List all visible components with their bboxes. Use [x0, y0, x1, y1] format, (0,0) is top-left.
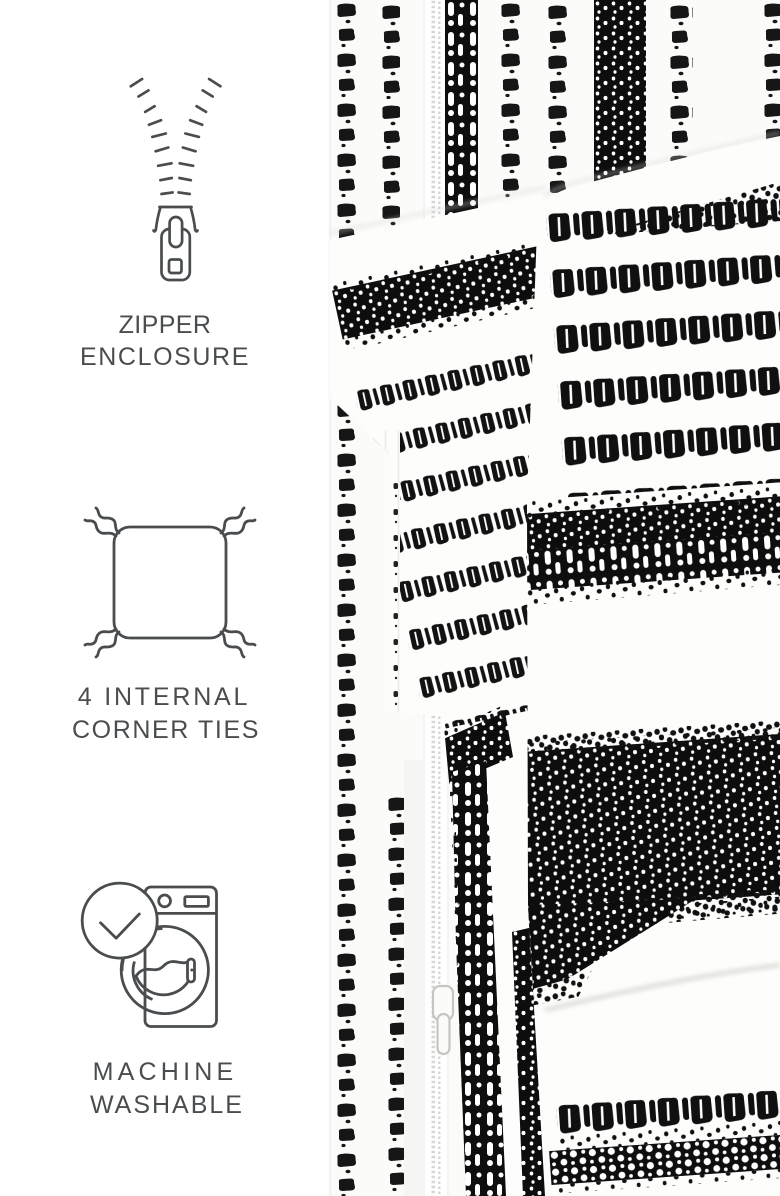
svg-text:ENCLOSURE: ENCLOSURE: [80, 343, 250, 371]
svg-text:MACHINE: MACHINE: [93, 1058, 238, 1086]
svg-text:WASHABLE: WASHABLE: [90, 1091, 244, 1119]
svg-text:4 INTERNAL: 4 INTERNAL: [78, 683, 250, 711]
svg-text:ZIPPER: ZIPPER: [119, 311, 212, 339]
svg-text:CORNER TIES: CORNER TIES: [72, 716, 260, 744]
